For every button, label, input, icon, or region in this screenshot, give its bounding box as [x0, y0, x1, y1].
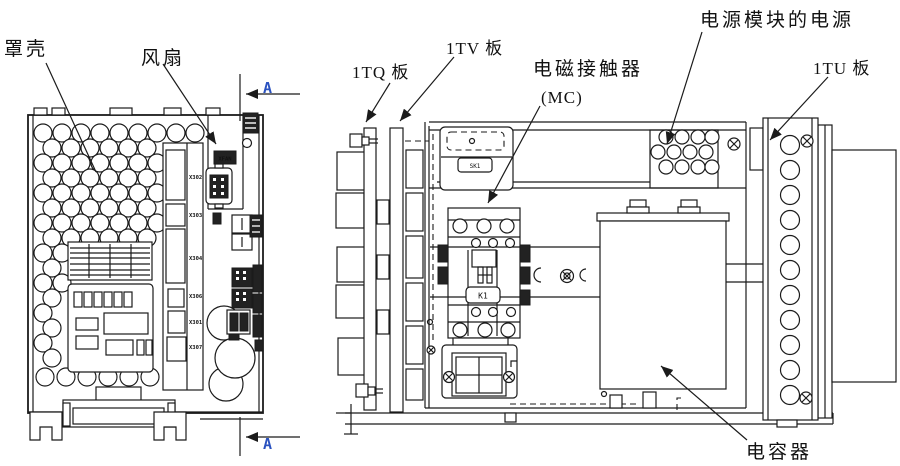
- power-vent-panel: [650, 130, 719, 188]
- section-marker-bottom: A: [240, 417, 300, 456]
- side-view-drawing: SK1: [336, 118, 896, 434]
- section-letter-bottom: A: [263, 435, 272, 453]
- power-module-label: 电源模块的电源: [700, 9, 854, 31]
- magnetic-contactor: K1: [438, 208, 530, 348]
- relay-sk1: SK1: [440, 127, 513, 190]
- sk1-label: SK1: [470, 163, 481, 170]
- connector-label-x307: X307: [189, 345, 202, 351]
- board-1tu-assembly: [728, 118, 896, 427]
- board-1tq: [364, 128, 376, 410]
- connector-label-x302: X302: [189, 175, 202, 181]
- board-1tu-label: 1TU 板: [813, 59, 870, 78]
- connector-strip: X302 X303 X304 X306 X301 X307: [163, 143, 203, 390]
- board-1tv: [390, 128, 403, 412]
- connector-label-x301: X301: [189, 320, 203, 326]
- front-view-drawing: X302 X303 X304 X306 X301 X307 XFAN: [28, 108, 263, 440]
- k1-label: K1: [478, 292, 488, 301]
- diagram-svg: X302 X303 X304 X306 X301 X307 XFAN: [0, 0, 900, 466]
- component-panel: [68, 284, 153, 372]
- connector-label-x303: X303: [189, 213, 202, 219]
- capacitor-label: 电容器: [746, 441, 812, 463]
- section-letter-top: A: [263, 79, 272, 97]
- contactor-label-line1: 电磁接触器: [533, 58, 643, 80]
- cover-label: 罩壳: [4, 38, 48, 60]
- capacitor-block: [597, 200, 729, 408]
- figure-canvas: X302 X303 X304 X306 X301 X307 XFAN: [0, 0, 900, 466]
- connector-label-x304: X304: [189, 256, 203, 262]
- boards-1tq-1tv: [336, 128, 423, 412]
- connector-label-x306: X306: [189, 294, 203, 300]
- heatsink-block: [832, 150, 896, 382]
- fan-label: 风扇: [141, 47, 185, 69]
- power-leader-line: [667, 32, 702, 144]
- cable-hole: [215, 338, 255, 378]
- xfan-label: XFAN: [218, 157, 231, 163]
- board-1tq-label: 1TQ 板: [352, 63, 409, 82]
- base-rail: [336, 398, 833, 434]
- rating-sticker: [68, 242, 152, 280]
- tq-leader-line: [366, 83, 390, 122]
- contactor-label-line2: (MC): [541, 88, 583, 107]
- board-1tv-label: 1TV 板: [446, 39, 503, 58]
